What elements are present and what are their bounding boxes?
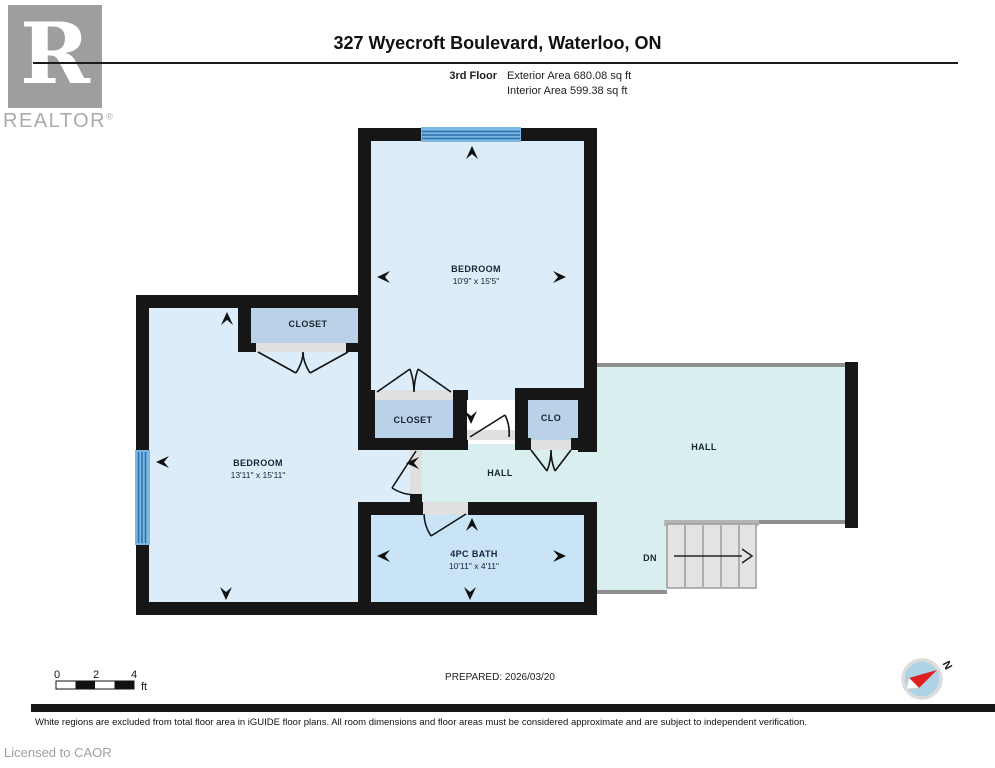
wall-segment <box>238 343 256 352</box>
label-closet-small: CLO <box>541 413 561 423</box>
wall-segment <box>845 362 858 528</box>
label-closet-top: CLOSET <box>289 319 328 329</box>
wall-segment <box>358 502 371 615</box>
prepared-date: PREPARED: 2026/03/20 <box>390 672 610 683</box>
dims-top-bedroom: 10'9" x 15'5" <box>453 276 500 286</box>
compass-north-label: N <box>940 659 954 672</box>
opening-sill <box>256 343 346 352</box>
label-hall-right: HALL <box>691 442 717 452</box>
label-closet-mid: CLOSET <box>394 415 433 425</box>
hall-connector-floor <box>584 452 597 507</box>
scale-bar-segment <box>76 681 96 689</box>
scale-tick-0: 0 <box>54 669 60 681</box>
wall-segment <box>136 295 371 308</box>
dims-bath: 10'11" x 4'11" <box>449 561 499 571</box>
footer-divider <box>31 704 995 712</box>
scale-bar: 0 2 4 ft <box>54 669 147 693</box>
opening-sill <box>423 502 468 515</box>
license-text: Licensed to CAOR <box>4 745 112 760</box>
compass: N <box>903 659 954 698</box>
floor-plan-drawing: BEDROOM 10'9" x 15'5" CLOSET CLOSET CLO … <box>0 0 995 768</box>
scale-unit: ft <box>141 681 147 693</box>
wall-segment <box>584 502 597 615</box>
dims-left-bedroom: 13'11" x 15'11" <box>231 470 286 480</box>
stairs <box>664 520 759 588</box>
scale-tick-4: 4 <box>131 669 137 681</box>
floor-plan-page: R REALTOR® 327 Wyecroft Boulevard, Water… <box>0 0 995 768</box>
hall-bottom-edge <box>756 520 845 524</box>
landing-bottom-edge <box>592 590 667 594</box>
wall-segment <box>571 438 591 450</box>
label-hall-center: HALL <box>487 468 513 478</box>
wall-segment <box>346 343 371 352</box>
disclaimer-text: White regions are excluded from total fl… <box>35 717 975 728</box>
label-left-bedroom: BEDROOM <box>233 458 283 468</box>
scale-tick-2: 2 <box>93 669 99 681</box>
label-stairs-dn: DN <box>643 553 657 563</box>
wall-segment <box>515 438 531 450</box>
opening-sill <box>531 440 571 450</box>
hall-top-edge <box>597 363 845 367</box>
label-top-bedroom: BEDROOM <box>451 264 501 274</box>
label-bath: 4PC BATH <box>450 549 498 559</box>
wall-segment <box>358 502 597 515</box>
scale-bar-segment <box>115 681 135 689</box>
